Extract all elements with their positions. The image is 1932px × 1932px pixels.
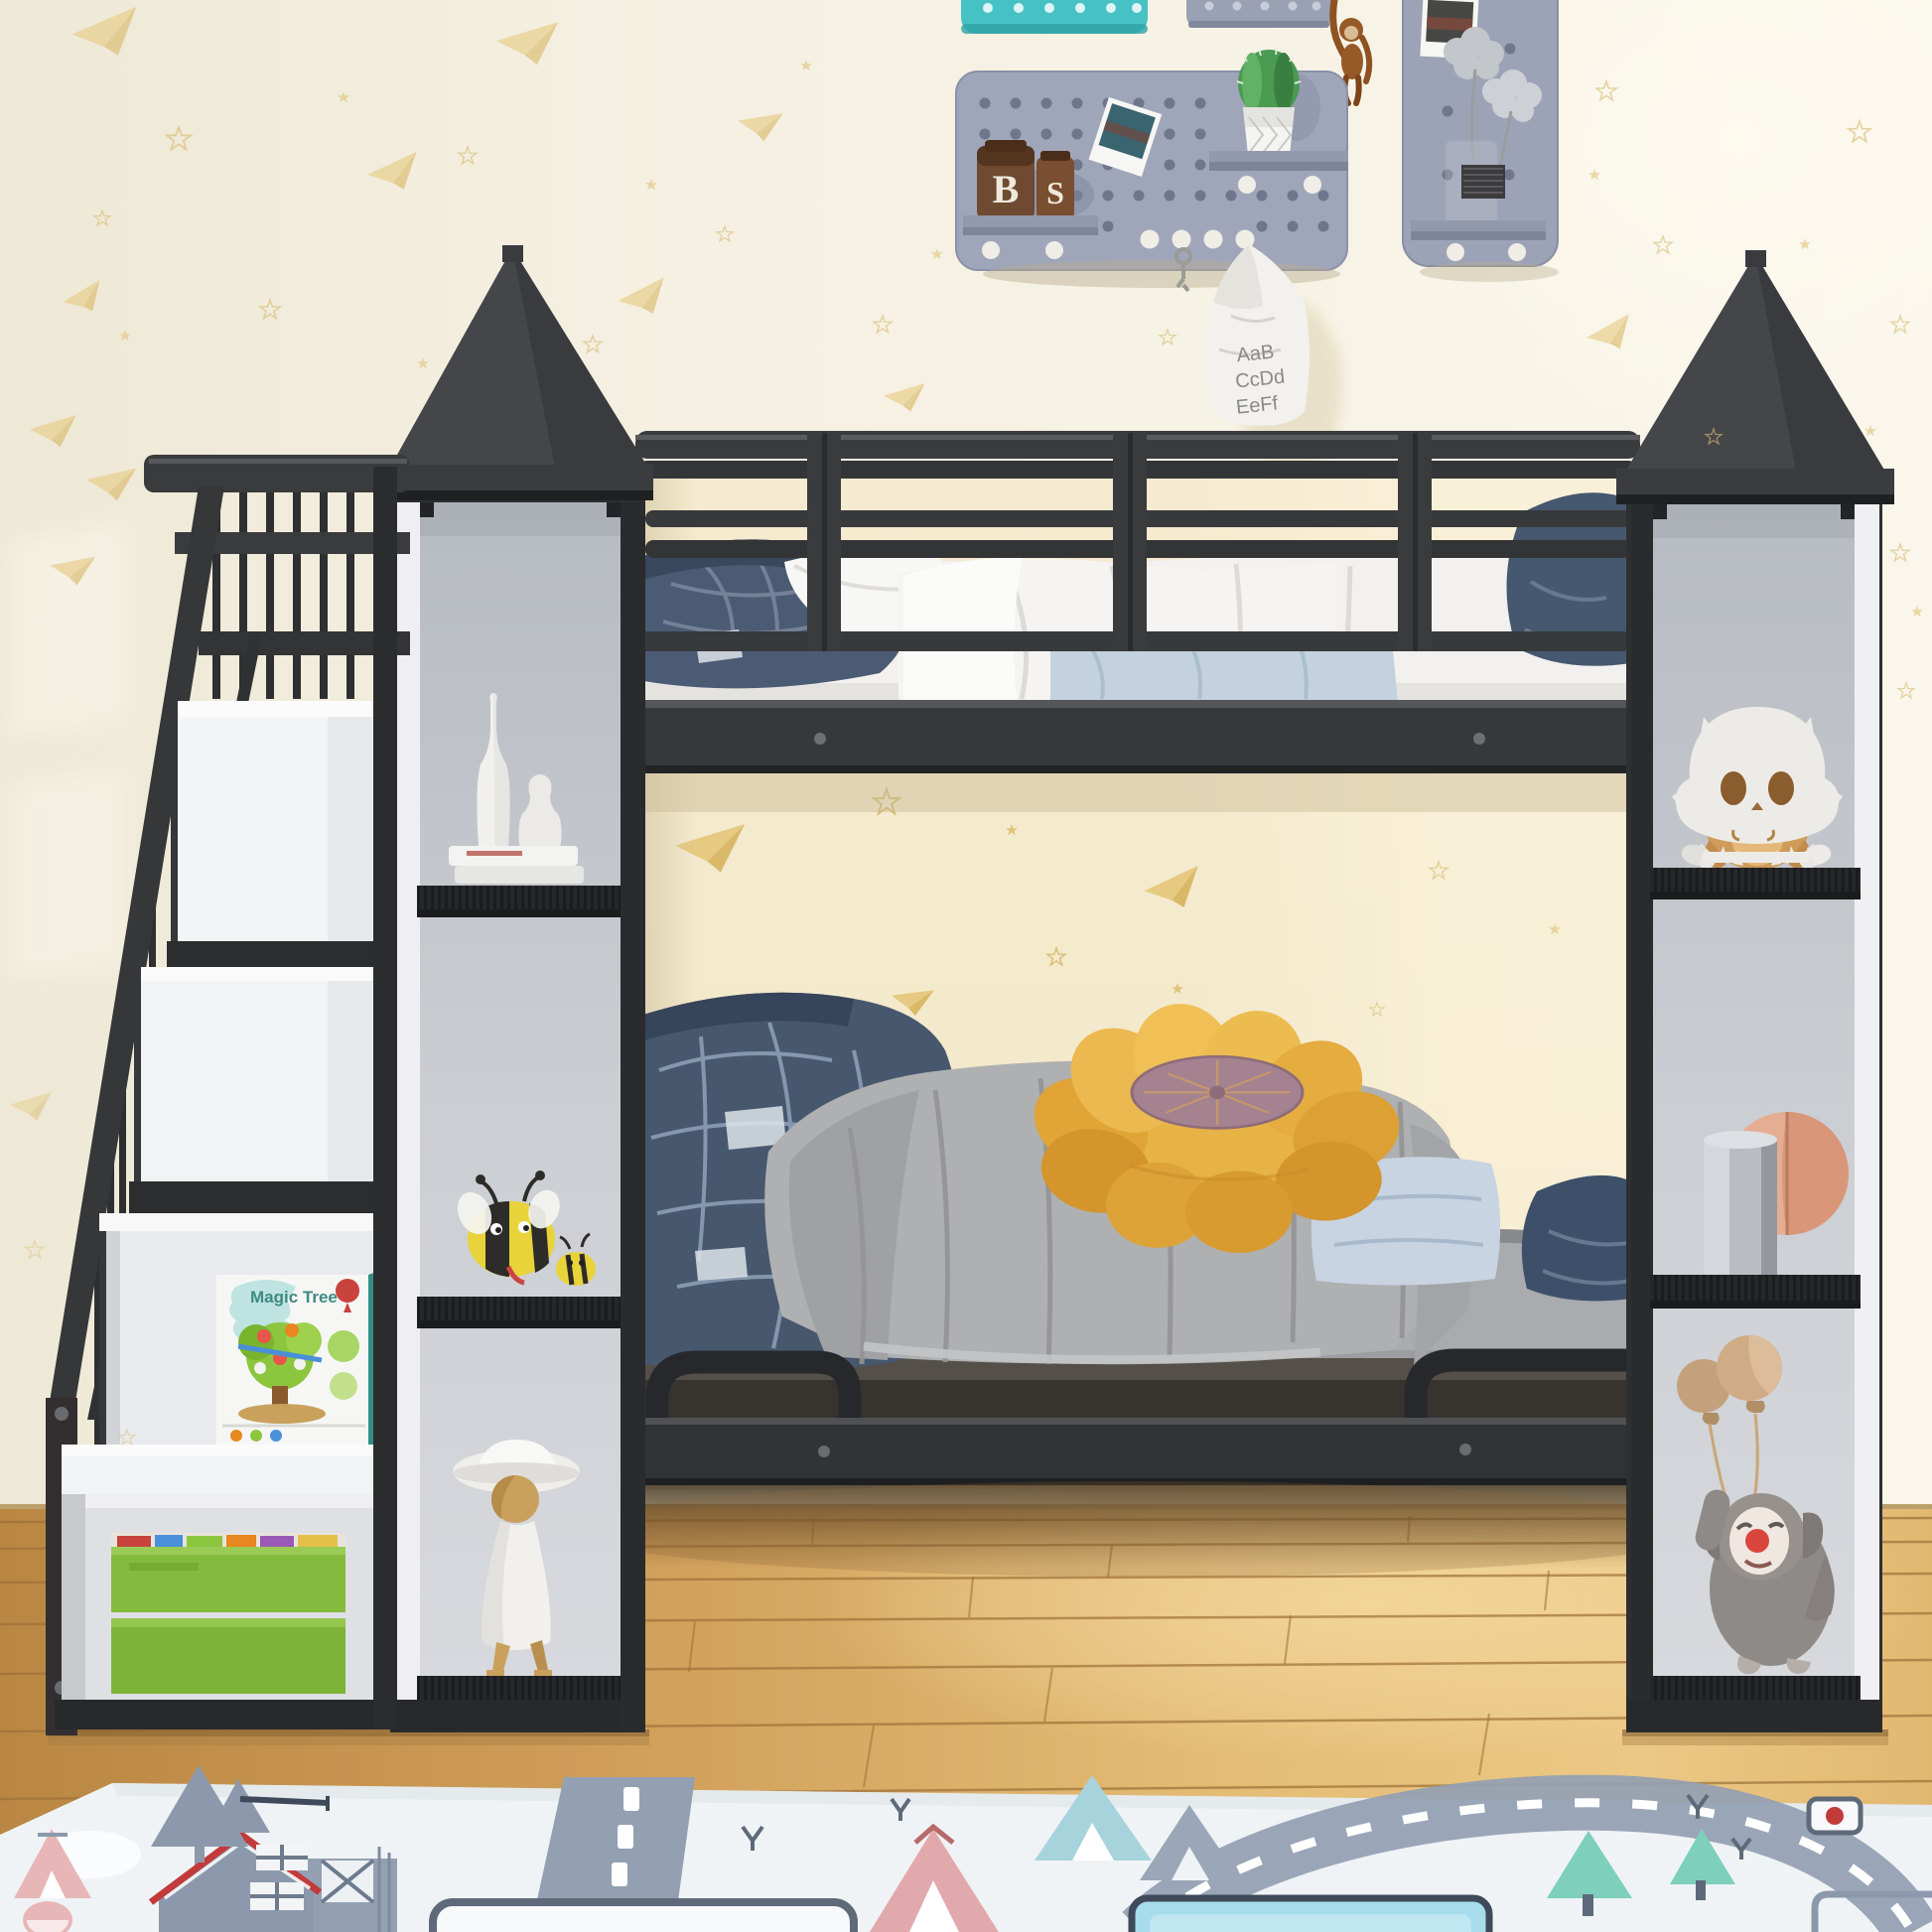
svg-text:Magic Tree: Magic Tree — [250, 1288, 338, 1307]
svg-text:AaB: AaB — [1235, 342, 1275, 367]
svg-text:S: S — [1046, 175, 1064, 210]
svg-text:B: B — [993, 167, 1020, 211]
svg-text:EeFf: EeFf — [1235, 392, 1280, 418]
